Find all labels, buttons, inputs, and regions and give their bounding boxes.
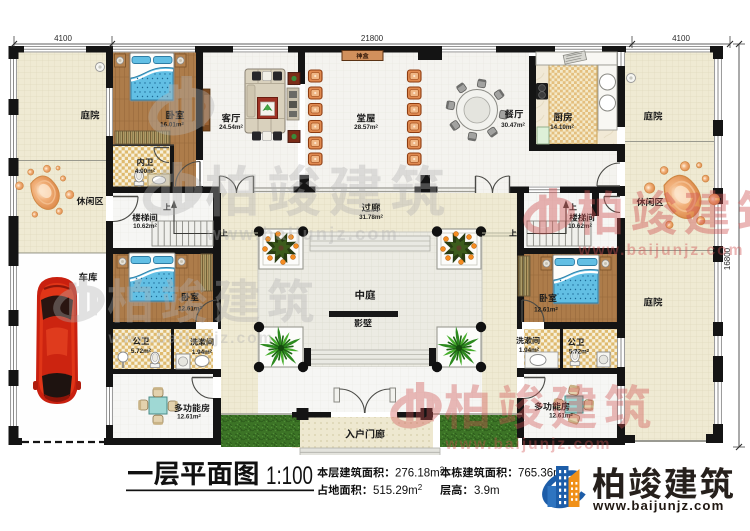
svg-text:1.94m2: 1.94m2 [519, 347, 540, 355]
svg-text:24.54m2: 24.54m2 [219, 124, 243, 132]
svg-text:30.47m2: 30.47m2 [501, 122, 525, 130]
svg-text:515.29m2: 515.29m2 [373, 483, 423, 497]
svg-text:www.baijunjz.com: www.baijunjz.com [592, 498, 724, 513]
svg-text:12.61m2: 12.61m2 [177, 413, 201, 421]
svg-text:1:100: 1:100 [266, 462, 313, 490]
svg-text:4100: 4100 [54, 34, 72, 43]
svg-text:12.61m2: 12.61m2 [534, 306, 558, 314]
svg-text:276.18m2: 276.18m2 [395, 466, 445, 480]
svg-text:4.00m2: 4.00m2 [135, 168, 156, 176]
svg-text:14.10m2: 14.10m2 [550, 124, 574, 132]
svg-text:21800: 21800 [361, 34, 384, 43]
svg-text:1.94m2: 1.94m2 [192, 349, 213, 357]
svg-text:5.72m2: 5.72m2 [131, 348, 152, 356]
svg-text:10.62m2: 10.62m2 [133, 223, 157, 231]
svg-text:5.72m2: 5.72m2 [569, 348, 590, 356]
svg-text:4100: 4100 [672, 34, 690, 43]
svg-text:3.9m: 3.9m [474, 485, 500, 497]
svg-text:28.57m2: 28.57m2 [354, 124, 378, 132]
